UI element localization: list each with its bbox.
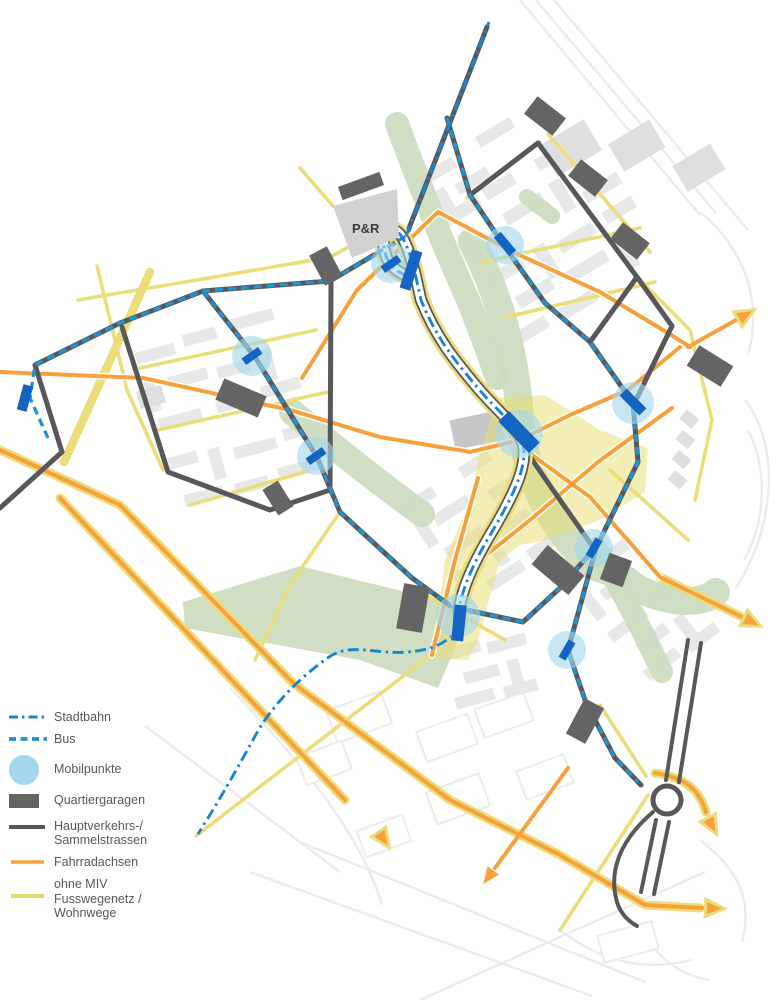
- legend-label: Fusswegenetz /: [54, 892, 142, 907]
- footpath-line-icon: [8, 891, 54, 901]
- quartiergarage: [610, 222, 650, 259]
- legend-label: ohne MIV: [54, 877, 142, 892]
- legend-item-fusswege: ohne MIV Fusswegenetz / Wohnwege: [8, 877, 198, 921]
- legend-label: Fahrradachsen: [54, 855, 138, 870]
- legend-label: Wohnwege: [54, 906, 142, 921]
- legend-item-fahrradachsen: Fahrradachsen: [8, 855, 198, 870]
- legend-item-stadtbahn: Stadtbahn: [8, 710, 198, 725]
- bus-line-icon: [8, 734, 54, 744]
- legend-label: Mobilpunkte: [54, 762, 121, 777]
- legend-label: Quartiergaragen: [54, 793, 145, 808]
- legend-item-bus: Bus: [8, 732, 198, 747]
- legend-label: Bus: [54, 732, 76, 747]
- legend-label: Stadtbahn: [54, 710, 111, 725]
- park-and-ride-label: P&R: [352, 221, 380, 236]
- mobilpunkt-circle-icon: [8, 754, 54, 786]
- bike-line-icon: [8, 857, 54, 867]
- bike-arrow-e: [738, 607, 769, 637]
- mobility-concept-map-page: { "map": { "pr_label": "P&R" }, "legend"…: [0, 0, 780, 1000]
- quartiergarage: [524, 96, 566, 136]
- bike-arrow-ne: [731, 298, 763, 329]
- street-line-icon: [8, 822, 54, 832]
- bike-arrow-se: [704, 897, 729, 920]
- legend: Stadtbahn Bus Mobilpunkte Quartiergarage…: [8, 710, 198, 928]
- stadtbahn-line-icon: [8, 712, 54, 722]
- legend-label: Sammelstrassen: [54, 833, 147, 848]
- legend-label: Hauptverkehrs-/: [54, 819, 147, 834]
- bike-arrow-roundabout: [697, 811, 728, 843]
- legend-item-quartiergaragen: Quartiergaragen: [8, 793, 198, 809]
- roundabout-circle: [653, 786, 681, 814]
- legend-item-hauptstrassen: Hauptverkehrs-/ Sammelstrassen: [8, 819, 198, 849]
- garage-rect-icon: [8, 793, 54, 809]
- legend-item-mobilpunkte: Mobilpunkte: [8, 754, 198, 786]
